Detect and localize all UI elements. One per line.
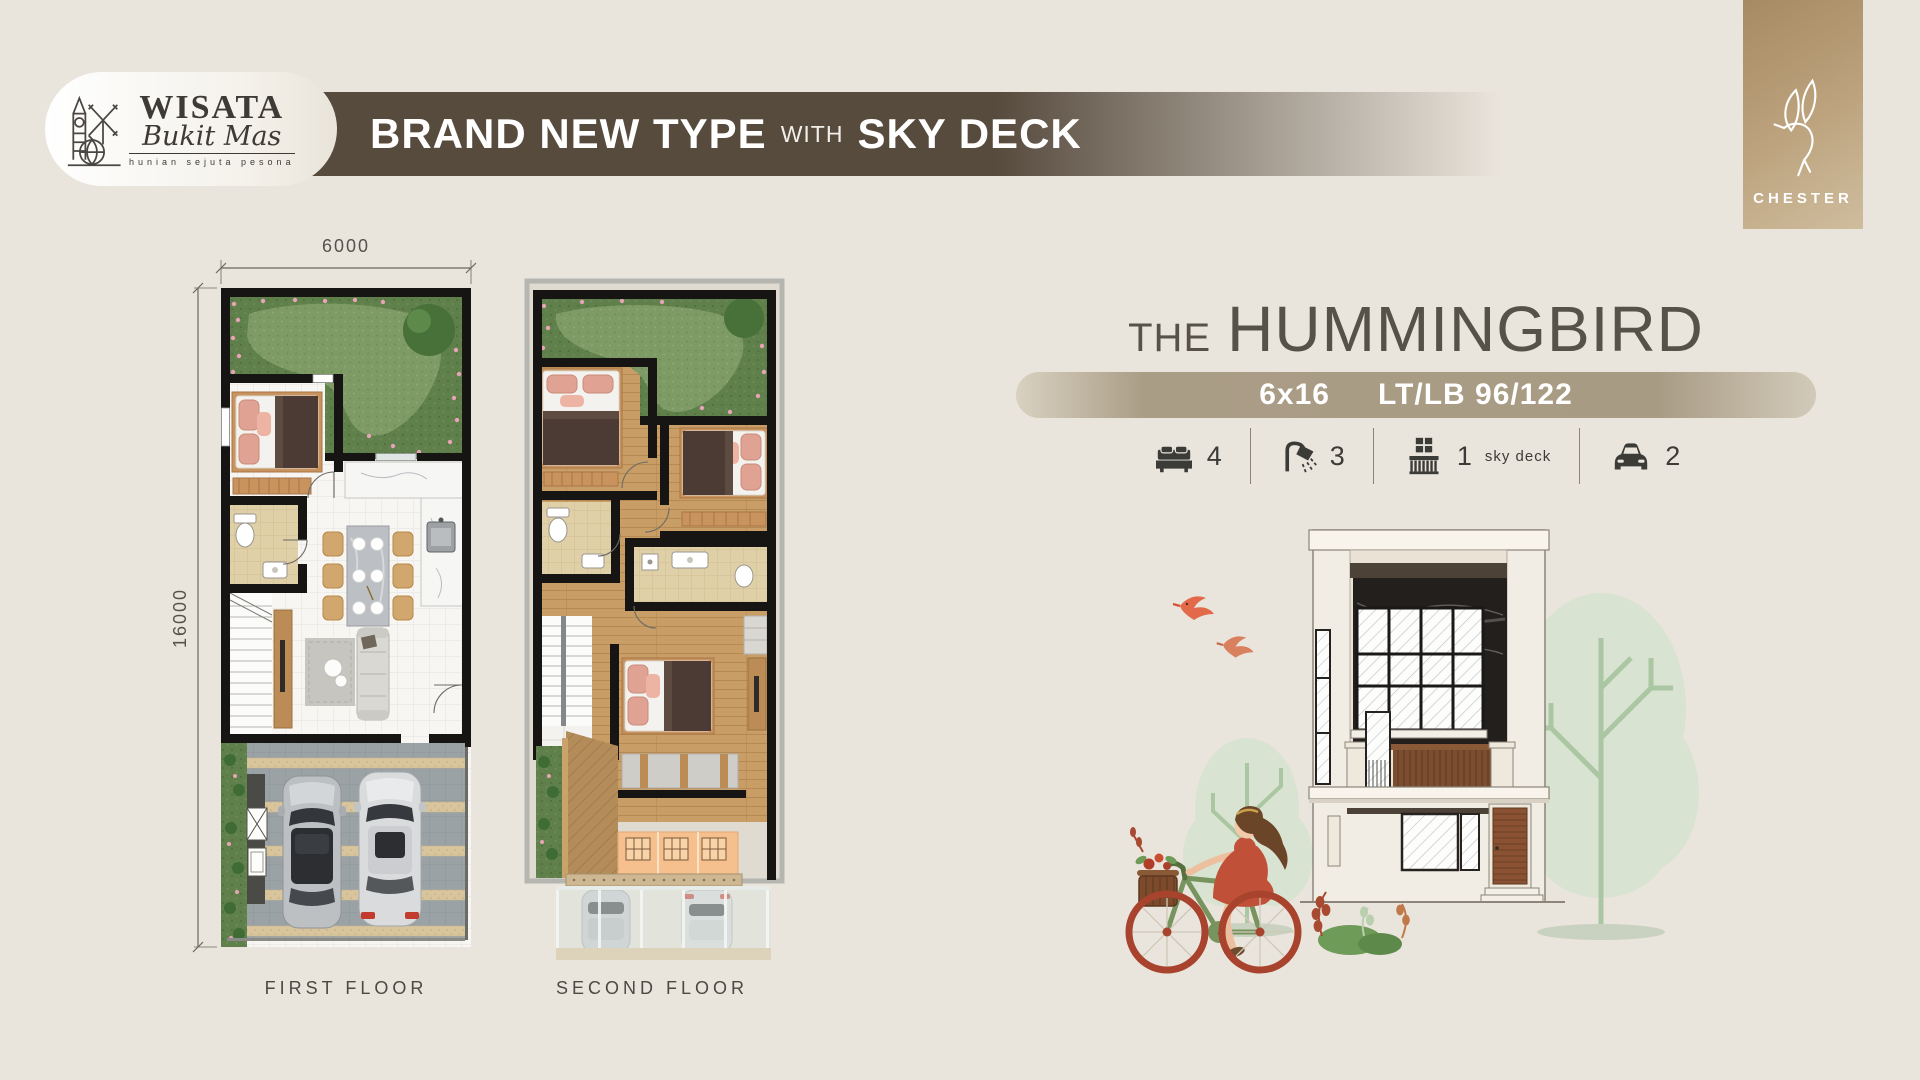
feature-sky-deck: 1 sky deck [1402,436,1551,476]
flyer-page: BRAND NEW TYPE WITH SKY DECK WISATA Buki… [0,0,1920,1080]
tv-console [274,610,292,728]
side-window [1316,630,1330,784]
area-ratio: LT/LB 96/122 [1378,378,1573,412]
bedroom-2 [540,368,622,486]
first-floor-label: FIRST FLOOR [221,978,471,999]
feature-divider [1373,428,1374,484]
header-connector: WITH [781,121,844,148]
house-facade [1300,530,1565,902]
hedge-2 [536,746,562,878]
balcony-door [1366,712,1390,790]
product-name: HUMMINGBIRD [1227,292,1704,366]
feature-carport: 2 [1608,438,1680,474]
bathroom [230,505,298,584]
dining-set [323,526,413,626]
second-floor-plan [522,276,790,971]
feature-bedrooms: 4 [1152,438,1222,474]
bench-row [622,754,738,788]
dim-width-line [216,260,476,284]
wisata-logo-icon [59,89,125,169]
car-dark [278,776,346,928]
lot-size: 6x16 [1259,378,1330,412]
car-icon [1608,438,1654,474]
feature-divider [1250,428,1251,484]
header-title-accent: SKY DECK [857,110,1081,158]
first-floor-drawing [221,288,471,947]
product-article: THE [1128,316,1211,361]
glass-canopy [556,886,771,960]
bathroom-upper [542,502,612,576]
bed-icon [1152,438,1196,474]
feature-bathrooms: 3 [1279,437,1345,475]
header-banner: BRAND NEW TYPE WITH SKY DECK [300,92,1500,176]
brand-name: CHESTER [1753,190,1853,207]
header-title-bold: BRAND NEW TYPE [370,110,767,158]
dim-height-label: 16000 [170,588,190,648]
brand-badge: CHESTER [1743,0,1863,229]
beam [566,874,742,886]
spec-bar: 6x16 LT/LB 96/122 [1016,372,1816,418]
shower-icon [1279,437,1319,475]
logo-script: Bukit Mas [142,123,281,150]
logo-name: WISATA [139,91,284,125]
sky-deck-icon [1402,436,1446,476]
bedroom [232,392,322,494]
dim-height-line [193,283,217,952]
carport [221,743,465,947]
bird-icon [1217,636,1254,657]
stairs [230,593,272,736]
second-floor-drawing [527,281,782,960]
house-illustration [1095,508,1735,983]
feature-divider [1579,428,1580,484]
first-floor-plan: 6000 16000 [150,220,480,965]
logo-tagline: hunian sejuta pesona [129,153,295,167]
second-floor-label: SECOND FLOOR [522,978,782,999]
car-light [354,772,426,926]
deck [566,731,618,876]
feature-row: 4 3 [1016,428,1816,484]
bathroom-lower [634,547,767,602]
bird-icon [1173,596,1214,620]
hummingbird-icon [1771,76,1835,180]
dim-width-label: 6000 [322,236,370,256]
sky-deck-band [618,832,738,874]
product-title: THE HUMMINGBIRD [1016,292,1816,366]
developer-logo: WISATA Bukit Mas hunian sejuta pesona [45,72,337,186]
